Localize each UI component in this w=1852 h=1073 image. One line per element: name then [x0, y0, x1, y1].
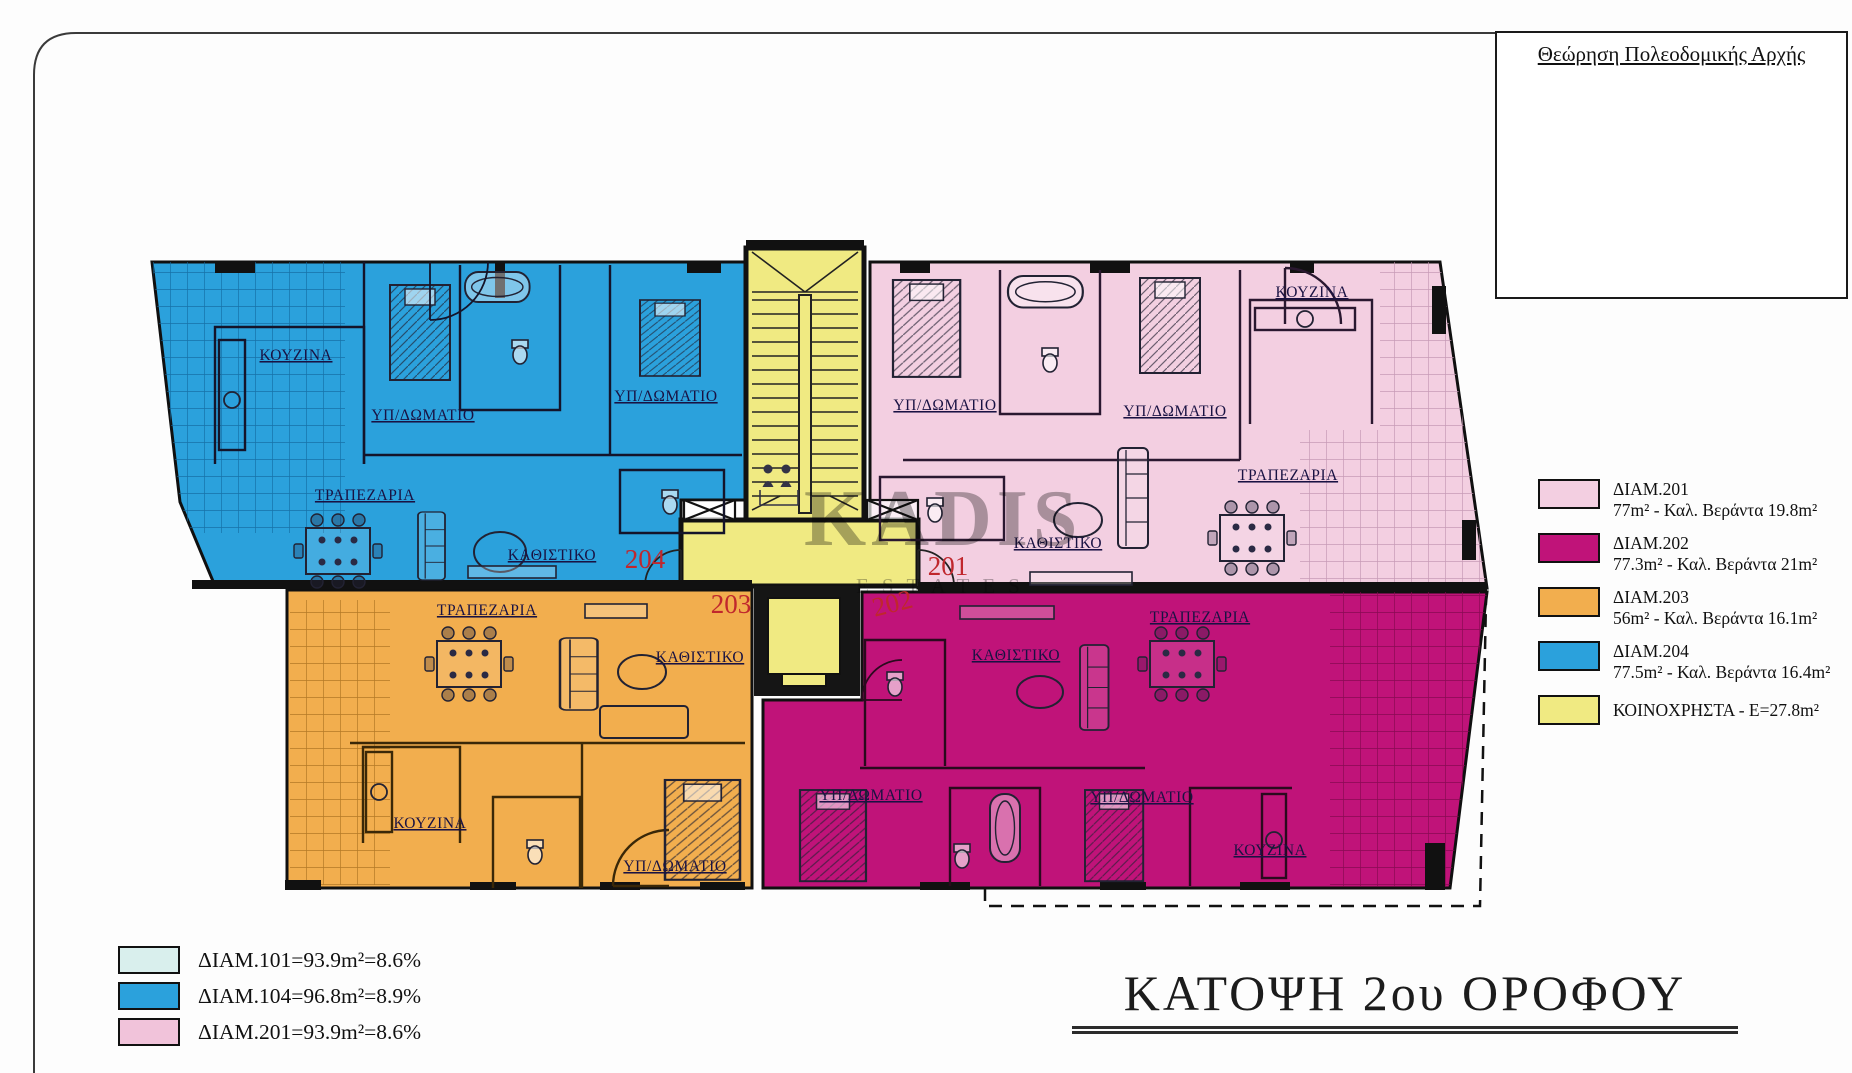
legend-right: ΔΙΑΜ.201 77m² - Καλ. Βεράντα 19.8m² ΔΙΑΜ… [1538, 479, 1850, 725]
room-label: ΚΑΘΙΣΤΙΚΟ [656, 649, 744, 666]
room-label: ΥΠ/ΔΩΜΑΤΙΟ [623, 858, 726, 875]
swatch-orange [1538, 587, 1600, 617]
tv-console [1030, 572, 1132, 585]
toilet-icon [887, 672, 903, 696]
legend-label: ΔΙΑΜ.101=93.9m²=8.6% [198, 948, 421, 973]
tv-console [960, 606, 1054, 619]
sofa-icon [418, 512, 445, 580]
toilet-icon [1042, 348, 1058, 372]
legend-text: ΔΙΑΜ.201 77m² - Καλ. Βεράντα 19.8m² [1613, 479, 1817, 521]
swatch-cyan [118, 946, 180, 974]
room-label: ΚΟΥΖΙΝΑ [1234, 842, 1307, 859]
room-label: ΥΠ/ΔΩΜΑΤΙΟ [819, 787, 922, 804]
legend-text: ΔΙΑΜ.202 77.3m² - Καλ. Βεράντα 21m² [1613, 533, 1817, 575]
room-label: ΥΠ/ΔΩΜΑΤΙΟ [1090, 789, 1193, 806]
room-label: ΚΟΥΖΙΝΑ [1276, 284, 1349, 301]
room-label: ΥΠ/ΔΩΜΑΤΙΟ [371, 407, 474, 424]
room-label: ΚΑΘΙΣΤΙΚΟ [972, 647, 1060, 664]
room-label: ΥΠ/ΔΩΜΑΤΙΟ [1123, 403, 1226, 420]
drawing-sheet: ΚΟΥΖΙΝΑ ΥΠ/ΔΩΜΑΤΙΟ ΥΠ/ΔΩΜΑΤΙΟ ΤΡΑΠΕΖΑΡΙΑ… [0, 0, 1852, 1073]
drawing-title: ΚΑΤΟΨΗ 2ου ΟΡΟΦΟΥ [1072, 964, 1738, 1034]
legend-item-104: ΔΙΑΜ.104=96.8m²=8.9% [118, 982, 421, 1010]
legend-item-common: ΚΟΙΝΟΧΡΗΣΤΑ - Ε=27.8m² [1538, 695, 1850, 725]
swatch-blue [118, 982, 180, 1010]
swatch-blue [1538, 641, 1600, 671]
legend-text: ΔΙΑΜ.203 56m² - Καλ. Βεράντα 16.1m² [1613, 587, 1817, 629]
legend-item-201b: ΔΙΑΜ.201=93.9m²=8.6% [118, 1018, 421, 1046]
swatch-pink [118, 1018, 180, 1046]
swatch-yellow [1538, 695, 1600, 725]
sofa-icon [1080, 645, 1109, 730]
legend-item-203: ΔΙΑΜ.203 56m² - Καλ. Βεράντα 16.1m² [1538, 587, 1850, 629]
approval-box-title: Θεώρηση Πολεοδομικής Αρχής [1497, 42, 1846, 67]
approval-box: Θεώρηση Πολεοδομικής Αρχής [1495, 31, 1848, 299]
swatch-pink [1538, 479, 1600, 509]
toilet-icon [512, 340, 528, 364]
toilet-icon [954, 844, 970, 868]
watermark-sub: ESTATES [856, 574, 1033, 599]
room-label: ΚΑΘΙΣΤΙΚΟ [508, 547, 596, 564]
bed-icon [390, 285, 450, 380]
room-label: ΚΟΥΖΙΝΑ [260, 347, 333, 364]
room-label: ΤΡΑΠΕΖΑΡΙΑ [1238, 467, 1338, 484]
bathtub-icon [1008, 276, 1083, 308]
room-label: ΤΡΑΠΕΖΑΡΙΑ [315, 487, 415, 504]
bathtub-icon [990, 794, 1020, 862]
bed-icon [1140, 278, 1200, 373]
legend-item-202: ΔΙΑΜ.202 77.3m² - Καλ. Βεράντα 21m² [1538, 533, 1850, 575]
veranda-hatch-202 [1330, 592, 1487, 886]
legend-item-201: ΔΙΑΜ.201 77m² - Καλ. Βεράντα 19.8m² [1538, 479, 1850, 521]
tv-console [468, 566, 556, 578]
room-label: ΥΠ/ΔΩΜΑΤΙΟ [893, 397, 996, 414]
legend-text: ΔΙΑΜ.204 77.5m² - Καλ. Βεράντα 16.4m² [1613, 641, 1830, 683]
room-label: ΚΟΥΖΙΝΑ [394, 815, 467, 832]
unit-number-204: 204 [625, 544, 666, 574]
toilet-icon [527, 840, 543, 864]
sofa-icon [560, 638, 598, 710]
bed-icon [640, 300, 700, 376]
tv-console [585, 604, 647, 618]
unit-number-203: 203 [711, 589, 752, 619]
legend-item-101: ΔΙΑΜ.101=93.9m²=8.6% [118, 946, 421, 974]
room-label: ΤΡΑΠΕΖΑΡΙΑ [1150, 609, 1250, 626]
legend-text: ΚΟΙΝΟΧΡΗΣΤΑ - Ε=27.8m² [1613, 700, 1819, 721]
sofa-icon [1118, 448, 1148, 548]
bathtub-icon [465, 272, 530, 302]
toilet-icon [662, 490, 678, 514]
bed-icon [893, 280, 960, 377]
swatch-magenta [1538, 533, 1600, 563]
legend-label: ΔΙΑΜ.201=93.9m²=8.6% [198, 1020, 421, 1045]
room-label: ΤΡΑΠΕΖΑΡΙΑ [437, 602, 537, 619]
legend-label: ΔΙΑΜ.104=96.8m²=8.9% [198, 984, 421, 1009]
room-label: ΥΠ/ΔΩΜΑΤΙΟ [614, 388, 717, 405]
watermark-brand: KADIS [804, 474, 1082, 565]
legend-bottom: ΔΙΑΜ.101=93.9m²=8.6% ΔΙΑΜ.104=96.8m²=8.9… [118, 946, 421, 1046]
legend-item-204: ΔΙΑΜ.204 77.5m² - Καλ. Βεράντα 16.4m² [1538, 641, 1850, 683]
